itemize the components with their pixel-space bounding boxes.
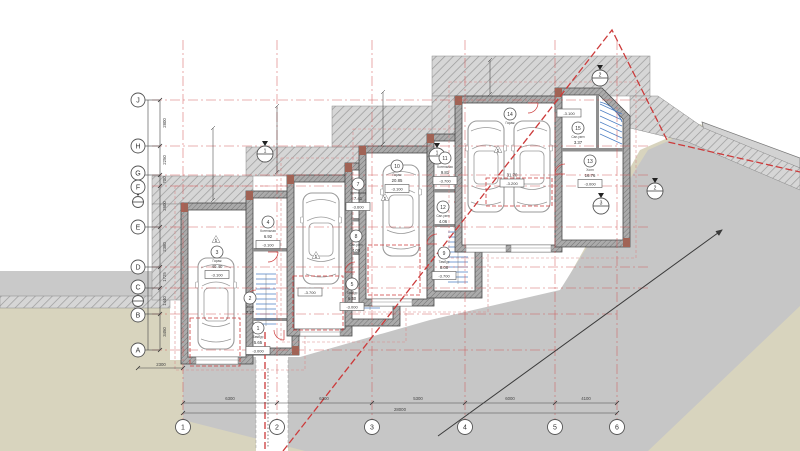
garage-door-opening (196, 357, 238, 364)
retaining-step-1 (152, 176, 253, 204)
garage-door-opening (466, 245, 506, 252)
wall-pier (359, 146, 366, 155)
svg-text:8.08: 8.08 (440, 265, 449, 270)
svg-text:4: 4 (267, 220, 270, 226)
dim-E-D: 2380 (162, 242, 167, 252)
floor-plan-drawing: 1 1 2 2 3 (0, 0, 800, 451)
svg-text:-3.200: -3.200 (506, 181, 518, 186)
svg-text:Котельная: Котельная (260, 229, 276, 233)
svg-text:Гараж: Гараж (393, 173, 403, 177)
grid-bubble-3: 3 (370, 425, 374, 432)
dim-C-B: 1440 (162, 296, 167, 306)
grid-bubble-H: H (135, 144, 140, 151)
section-marker-icon: 1 (257, 141, 273, 162)
svg-text:12: 12 (440, 205, 446, 211)
svg-text:Сан.узел: Сан.узел (349, 243, 362, 247)
svg-text:9.81: 9.81 (441, 170, 450, 175)
svg-text:Холл: Холл (586, 168, 594, 172)
svg-text:1: 1 (215, 239, 217, 243)
grid-bubble-2: 2 (275, 425, 279, 432)
dim-1-2: 6300 (225, 396, 235, 401)
svg-text:Котельная: Котельная (437, 165, 453, 169)
svg-text:31.70: 31.70 (507, 173, 518, 178)
svg-text:Тамбур: Тамбур (347, 291, 358, 295)
svg-text:13: 13 (587, 159, 593, 165)
svg-text:Котельная: Котельная (350, 191, 366, 195)
wall-pier (623, 238, 630, 247)
dim-5-6: 4100 (581, 396, 591, 401)
svg-text:1: 1 (384, 197, 386, 201)
svg-text:Сан.узел: Сан.узел (436, 214, 449, 218)
level-mark-h4-top: -3.100 (563, 111, 575, 116)
grid-bubble-G: G (135, 171, 140, 178)
svg-text:-3.700: -3.700 (438, 274, 450, 279)
house-unit-1 (175, 186, 305, 370)
svg-text:9: 9 (443, 251, 446, 257)
dim-B-A: 3450 (162, 327, 167, 337)
svg-text:Гараж: Гараж (506, 121, 516, 125)
retaining-step-1v (152, 204, 182, 300)
dim-3-4: 5300 (413, 396, 423, 401)
section-marker-number: 2 (599, 73, 602, 79)
svg-text:7: 7 (357, 182, 360, 188)
section-marker-number: 3 (600, 201, 603, 207)
svg-text:1: 1 (257, 326, 260, 332)
floor-plan-canvas: 1 1 2 2 3 (0, 0, 800, 451)
wall-pier (287, 175, 294, 184)
wall-pier (181, 203, 188, 212)
dim-G-F: 700 (162, 176, 167, 184)
section-marker-number: 1 (436, 151, 439, 157)
svg-text:-3.600: -3.600 (352, 205, 364, 210)
grid-bubble-6: 6 (615, 425, 619, 432)
svg-text:20.85: 20.85 (392, 178, 403, 183)
svg-text:-3.700: -3.700 (439, 179, 451, 184)
garage-door-opening (511, 245, 551, 252)
svg-text:7.41: 7.41 (354, 196, 363, 201)
grid-bubble-D: D (135, 265, 140, 272)
retaining-step-4 (432, 56, 650, 96)
dim-J-H: 2800 (162, 118, 167, 128)
svg-text:4.06: 4.06 (439, 219, 448, 224)
grid-bubble-E: E (136, 225, 141, 232)
svg-text:5: 5 (351, 282, 354, 288)
dim-2-3: 6300 (319, 396, 329, 401)
svg-text:15: 15 (575, 126, 581, 132)
svg-text:8: 8 (355, 234, 358, 240)
level-mark-h2-parking: -3.700 (304, 290, 316, 295)
svg-text:40.40: 40.40 (212, 264, 223, 269)
svg-text:-3.100: -3.100 (262, 243, 274, 248)
svg-text:1: 1 (497, 149, 499, 153)
grid-bubble-F: F (136, 185, 140, 192)
wall-pier (455, 96, 462, 105)
svg-text:Гараж: Гараж (213, 259, 223, 263)
dim-total: 28000 (394, 407, 407, 412)
svg-text:3: 3 (216, 250, 219, 256)
svg-text:-3.100: -3.100 (391, 187, 403, 192)
svg-text:-3.100: -3.100 (211, 273, 223, 278)
wall-pier (246, 191, 253, 200)
car-house-4-left (465, 121, 506, 212)
wall-pier (427, 134, 434, 143)
dim-F-E: 2600 (162, 201, 167, 211)
dim-4-5: 6000 (505, 396, 515, 401)
grid-bubble-B: B (136, 313, 141, 320)
svg-text:3.37: 3.37 (574, 140, 583, 145)
svg-text:5.65: 5.65 (254, 340, 263, 345)
svg-text:6.40: 6.40 (348, 296, 357, 301)
svg-text:7.27: 7.27 (246, 310, 255, 315)
house-unit-4 (449, 82, 636, 258)
svg-text:Сан.узел: Сан.узел (571, 135, 584, 139)
dim-H-G: 2250 (162, 155, 167, 165)
dim-D-C: 1725 (162, 272, 167, 282)
svg-text:10: 10 (394, 164, 400, 170)
section-marker-number: 1 (264, 149, 267, 155)
wall-pier (292, 346, 299, 355)
svg-text:2: 2 (249, 296, 252, 302)
curb-hatch-left (0, 296, 170, 308)
grid-bubble-4: 4 (463, 425, 467, 432)
grid-bubble-J: J (136, 98, 140, 105)
svg-text:-3.000: -3.000 (252, 349, 264, 354)
car-house-2 (300, 193, 341, 284)
svg-text:1: 1 (315, 255, 317, 259)
wall-pier (345, 163, 352, 172)
ground-beige-left (0, 308, 170, 451)
svg-text:Тамбур: Тамбур (439, 260, 450, 264)
section-marker-number: 2 (654, 186, 657, 192)
grid-bubble-5: 5 (553, 425, 557, 432)
svg-text:-3.000: -3.000 (346, 305, 358, 310)
svg-text:11: 11 (442, 156, 447, 162)
svg-text:14: 14 (507, 112, 513, 118)
grid-bubble-C: C (135, 285, 140, 292)
garage-door-opening (372, 299, 412, 306)
dim-offset-2300: 2300 (156, 362, 166, 367)
svg-text:Тамбур: Тамбур (253, 335, 264, 339)
svg-text:16.76: 16.76 (585, 173, 596, 178)
car-house-4-right (511, 121, 552, 212)
svg-text:Холл: Холл (246, 305, 254, 309)
grid-bubble-A: A (136, 348, 141, 355)
grid-bubble-1: 1 (181, 425, 185, 432)
svg-text:-3.000: -3.000 (584, 182, 596, 187)
svg-text:4.00: 4.00 (352, 248, 361, 253)
svg-text:6.92: 6.92 (264, 234, 273, 239)
